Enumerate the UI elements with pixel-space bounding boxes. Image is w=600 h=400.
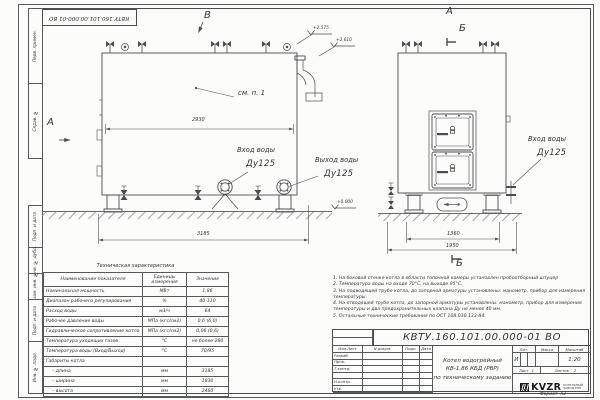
note-reference: см. п. 1	[238, 90, 265, 97]
elevation-top1: +2.575	[313, 27, 329, 31]
document-name-line: по техническому заданию	[434, 374, 512, 382]
sig-role: Т.контр.	[333, 366, 363, 373]
format-note: Формат А3	[540, 392, 566, 397]
spec-cell: Температура уходящих газов	[44, 337, 143, 347]
drain-valve-icons	[121, 186, 262, 200]
spec-table: Наименование показателя Единицы измерени…	[43, 272, 229, 397]
document-name-line: КВ-1,86 КБД (РВР)	[446, 365, 499, 373]
spec-row: Температура уходящих газов°Сне более 280	[44, 337, 229, 347]
sheets-cell: Листов2	[541, 367, 590, 374]
spec-cell: МПа (кгс/см2)	[143, 327, 187, 337]
section-label-top: Б	[459, 24, 466, 34]
sheets-label: Листов	[555, 368, 569, 373]
dim-body-length: 2930	[192, 118, 205, 123]
spec-row: Диапазон рабочего регулирования%40-110	[44, 297, 229, 307]
spec-cell: °С	[143, 337, 187, 347]
spec-cell: Рабочее давление воды	[44, 317, 143, 327]
spec-cell: МВт	[143, 287, 187, 297]
spec-row: Габариты котла	[44, 357, 229, 367]
document-name: Котел водогрейный КВ-1,86 КБД (РВР) по т…	[433, 346, 513, 393]
lit-empty	[528, 353, 536, 367]
sig-role: Пров.	[333, 360, 363, 367]
sig-empty	[363, 353, 403, 360]
spec-row: – длинамм3185	[44, 367, 229, 377]
spec-cell: 0,06 (0,6)	[187, 327, 229, 337]
sig-empty	[363, 379, 403, 386]
mass-header: Масса	[536, 346, 559, 353]
water-flange-icons	[218, 180, 291, 194]
spec-cell: Гидравлическое сопротивление котла	[44, 327, 143, 337]
sig-empty	[363, 366, 403, 373]
brand-subtitle-line: ЗАВОД РЭП	[563, 387, 583, 390]
sig-role: Разраб.	[333, 353, 363, 360]
spec-table-title: Техническая характеристика	[43, 263, 228, 269]
note-line: 4. На отводящей трубе котла, до запорной…	[333, 301, 590, 313]
spec-cell: °С	[143, 347, 187, 357]
title-block: КВТУ.160.101.00.000-01 ВО Изм.Лист N док…	[332, 329, 589, 392]
sheet-cell: Лист1	[513, 367, 541, 374]
sig-empty	[403, 379, 420, 386]
spec-cell	[187, 357, 229, 367]
spec-cell: 40-110	[187, 297, 229, 307]
spec-cell: – ширина	[44, 377, 143, 387]
spec-cell: мм	[143, 377, 187, 387]
spec-cell: МПа (кгс/см2)	[143, 317, 187, 327]
sig-empty	[420, 373, 433, 380]
water-outlet-label: Выход воды	[315, 157, 358, 164]
spec-row: Номинальная мощностьМВт1,86	[44, 287, 229, 297]
spec-cell: – высота	[44, 387, 143, 397]
front-inlet-dn: Ду125	[537, 149, 566, 158]
spec-cell: 70/95	[187, 347, 229, 357]
kvzr-logo-icon	[520, 383, 529, 392]
sig-empty	[403, 386, 420, 393]
leader-lines	[195, 87, 541, 187]
sig-empty	[363, 360, 403, 367]
strip-label: Подп. и дата	[33, 306, 38, 335]
revision-cell	[333, 338, 373, 346]
dim-support-span: 1360	[447, 232, 460, 237]
drawing-sheet: Перв. примен. Справ. № Подп. и дата Инв.…	[0, 0, 600, 400]
note-line: 2. Температура воды на входе 70°С, на вы…	[333, 282, 590, 288]
scale-header: Масштаб	[559, 346, 590, 353]
dim-base-width: 1950	[446, 244, 459, 249]
sig-role	[333, 373, 363, 380]
sig-empty	[403, 353, 420, 360]
frame-strip-cell: Взам. инв. №	[28, 273, 43, 301]
sig-empty	[420, 379, 433, 386]
spec-cell: 1830	[187, 377, 229, 387]
spec-row: – ширинамм1830	[44, 377, 229, 387]
spec-cell: 3185	[187, 367, 229, 377]
section-label-bottom: Б	[456, 259, 463, 269]
sig-empty	[403, 366, 420, 373]
note-line: 3. На подводящей трубе котла, до запорно…	[333, 289, 590, 301]
document-name-line: Котел водогрейный	[443, 357, 502, 365]
sig-empty	[363, 386, 403, 393]
spec-cell: %	[143, 297, 187, 307]
spec-cell: мм	[143, 367, 187, 377]
sig-col-header: Изм.Лист	[333, 346, 363, 353]
view-b-label: В	[204, 11, 211, 21]
spec-cell: мм	[143, 387, 187, 397]
sig-empty	[420, 386, 433, 393]
spec-cell: не более 280	[187, 337, 229, 347]
signature-grid: Изм.Лист N докум. Подп. Дата Разраб. Про…	[333, 346, 433, 393]
lit-header: Лит.	[513, 346, 536, 353]
lit-empty	[521, 353, 529, 367]
format-label: Формат	[540, 392, 557, 397]
sig-empty	[403, 360, 420, 367]
spec-col-header: Наименование показателя	[44, 273, 143, 287]
scale-value: 1:20	[559, 353, 590, 367]
spec-col-header: Значение	[187, 273, 229, 287]
spec-col-header: Единицы измерения	[143, 273, 187, 287]
sig-col-header: Подп.	[403, 346, 420, 353]
spec-row: Гидравлическое сопротивление котлаМПа (к…	[44, 327, 229, 337]
spec-row: – высотамм2460	[44, 387, 229, 397]
spec-cell: Температура воды (Вход/Выход)	[44, 347, 143, 357]
spec-row: Рабочее давление водыМПа (кгс/см2)0,6 (6…	[44, 317, 229, 327]
frame-strip-cell: Инв. № подл.	[28, 341, 43, 394]
spec-row: Расход водым3/ч64	[44, 307, 229, 317]
front-inlet-label: Вход воды	[528, 136, 566, 143]
spec-cell: Расход воды	[44, 307, 143, 317]
spec-cell: Диапазон рабочего регулирования	[44, 297, 143, 307]
sig-empty	[420, 366, 433, 373]
brand-subtitle: КОТЕЛЬНЫЙ ЗАВОД РЭП	[563, 384, 583, 391]
top-valve-icons-side	[106, 41, 270, 53]
spec-cell	[143, 357, 187, 367]
brand-name: KVZR	[531, 382, 561, 393]
spec-cell: 64	[187, 307, 229, 317]
note-line: 5. Остальные технические требования по О…	[333, 314, 590, 320]
sig-role: Утв.	[333, 386, 363, 393]
strip-label: Взам. инв. №	[33, 272, 38, 302]
spec-cell: Габариты котла	[44, 357, 143, 367]
sig-role: Н.контр.	[333, 379, 363, 386]
spec-cell: м3/ч	[143, 307, 187, 317]
elevation-mark-icons	[297, 31, 356, 210]
water-inlet-label: Вход воды	[237, 147, 275, 154]
elevation-zero: +0.000	[337, 201, 353, 205]
sheet-label: Лист	[519, 368, 529, 373]
spec-cell: 1,86	[187, 287, 229, 297]
revision-cell	[333, 330, 373, 338]
strip-label: Инв. № подл.	[33, 352, 38, 382]
sig-col-header: Дата	[420, 346, 433, 353]
mass-value	[536, 353, 559, 367]
door-handle-icons	[450, 126, 454, 171]
ground-hatch	[42, 212, 522, 222]
boiler-drawing-lineart	[0, 0, 600, 270]
document-designation: КВТУ.160.101.00.000-01 ВО	[373, 330, 590, 346]
title-block-right: Лит. Масса Масштаб И 1:20 Лист1 Листов2 …	[513, 346, 590, 393]
water-inlet-dn: Ду125	[246, 160, 275, 169]
front-view-label: А	[446, 7, 453, 17]
spec-cell: 2460	[187, 387, 229, 397]
front-view	[398, 53, 516, 213]
format-value: А3	[560, 392, 566, 397]
sig-empty	[420, 360, 433, 367]
sig-col-header: N докум.	[363, 346, 403, 353]
dim-overall-length: 3185	[197, 232, 210, 237]
spec-row: Температура воды (Вход/Выход)°С70/95	[44, 347, 229, 357]
sig-empty	[403, 373, 420, 380]
sheets-value: 2	[574, 368, 576, 373]
spec-cell: – длина	[44, 367, 143, 377]
sig-empty	[363, 373, 403, 380]
sig-empty	[420, 353, 433, 360]
spec-header-row: Наименование показателя Единицы измерени…	[44, 273, 229, 287]
view-a-label: А	[47, 118, 54, 128]
spec-cell: 0,6 (6,0)	[187, 317, 229, 327]
water-outlet-dn: Ду125	[324, 170, 353, 179]
section-mark-icons	[447, 38, 461, 263]
frame-strip-cell: Подп. и дата	[28, 299, 43, 343]
elevation-top2: +2.610	[336, 39, 352, 43]
top-valve-icons-front	[402, 41, 499, 53]
front-left-valve-icons	[388, 183, 394, 209]
view-arrows	[59, 22, 203, 140]
spec-cell: Номинальная мощность	[44, 287, 143, 297]
lit-value: И	[513, 353, 521, 367]
technical-notes: 1. На боковой стенке котла в области топ…	[333, 276, 590, 320]
sheet-value: 1	[532, 368, 534, 373]
